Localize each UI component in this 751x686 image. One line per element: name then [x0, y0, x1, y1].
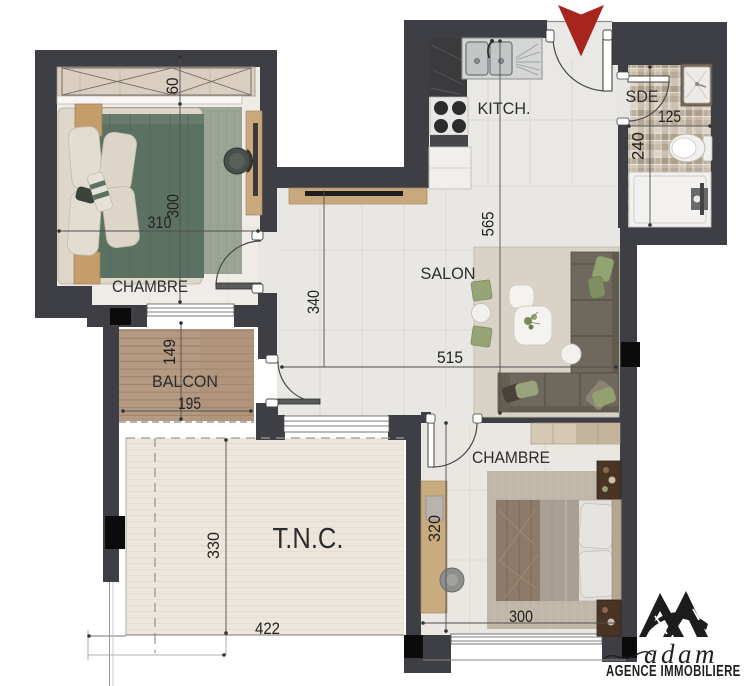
svg-text:CHAMBRE: CHAMBRE [472, 448, 550, 467]
svg-text:300: 300 [509, 607, 533, 626]
svg-text:340: 340 [304, 290, 323, 314]
svg-text:KITCH.: KITCH. [478, 99, 531, 118]
svg-text:BALCON: BALCON [152, 373, 218, 391]
svg-text:125: 125 [658, 107, 681, 126]
svg-text:CHAMBRE: CHAMBRE [112, 277, 188, 296]
svg-text:T.N.C.: T.N.C. [273, 523, 344, 555]
svg-text:149: 149 [160, 339, 179, 365]
svg-text:330: 330 [204, 532, 223, 559]
svg-text:SDE: SDE [626, 87, 659, 106]
svg-text:195: 195 [178, 394, 201, 413]
svg-text:60: 60 [163, 78, 182, 95]
svg-text:240: 240 [629, 132, 648, 160]
svg-text:565: 565 [479, 212, 498, 237]
svg-text:AGENCE IMMOBILIERE: AGENCE IMMOBILIERE [606, 661, 741, 679]
svg-text:300: 300 [164, 194, 183, 218]
svg-text:320: 320 [425, 515, 444, 542]
svg-text:422: 422 [255, 619, 280, 638]
svg-text:515: 515 [437, 348, 463, 367]
svg-text:SALON: SALON [421, 264, 476, 283]
